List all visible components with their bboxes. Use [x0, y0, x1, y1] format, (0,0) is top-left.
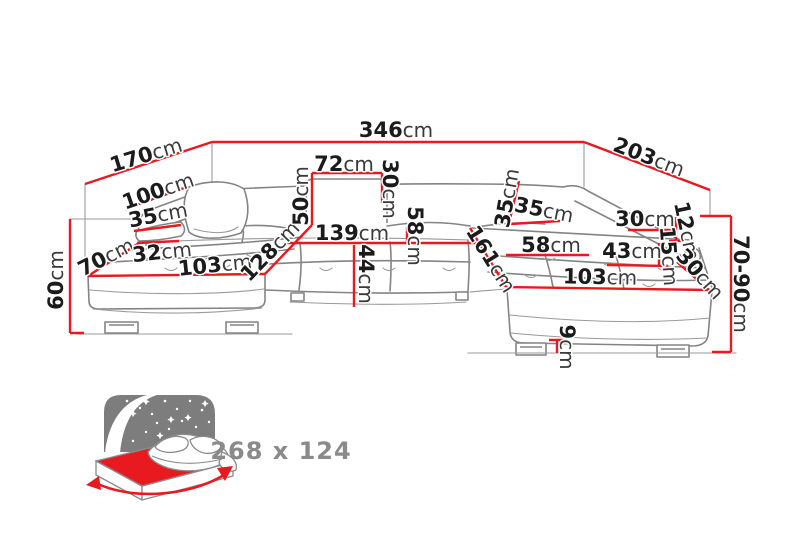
dim-label-43: 43cm	[602, 239, 662, 263]
left-legs	[105, 322, 258, 333]
dim-label-58-center: 58cm	[403, 206, 427, 266]
sofa-dimension-diagram: 170cm 346cm 203cm 100cm 35cm 70cm 32cm 1…	[0, 0, 800, 533]
dim-label-44: 44cm	[354, 244, 378, 304]
dim-label-60: 60cm	[44, 250, 68, 310]
dim-label-203: 203cm	[610, 132, 688, 181]
dim-label-161: 161cm	[461, 221, 521, 297]
dim-label-70: 70cm	[74, 233, 138, 281]
dim-label-103-right: 103cm	[563, 264, 638, 289]
dim-label-70-90: 70-90cm	[729, 235, 753, 333]
dim-label-58-right: 58cm	[521, 233, 581, 257]
headrest-panel	[306, 179, 387, 224]
diagram-canvas: 170cm 346cm 203cm 100cm 35cm 70cm 32cm 1…	[0, 0, 800, 533]
dim-label-50: 50cm	[289, 166, 313, 226]
bed-size-label: 268 x 124	[210, 437, 351, 465]
dim-label-346: 346cm	[359, 118, 433, 142]
fold-out-bed-icon: 268 x 124	[86, 394, 352, 500]
dim-label-170: 170cm	[107, 133, 185, 178]
unfold-arrow-head-left	[86, 476, 101, 490]
dim-label-72: 72cm	[314, 152, 374, 176]
dim-label-139: 139cm	[315, 221, 389, 245]
dim-label-30-headrest: 30cm	[378, 159, 402, 219]
dim-label-9: 9cm	[555, 324, 579, 369]
